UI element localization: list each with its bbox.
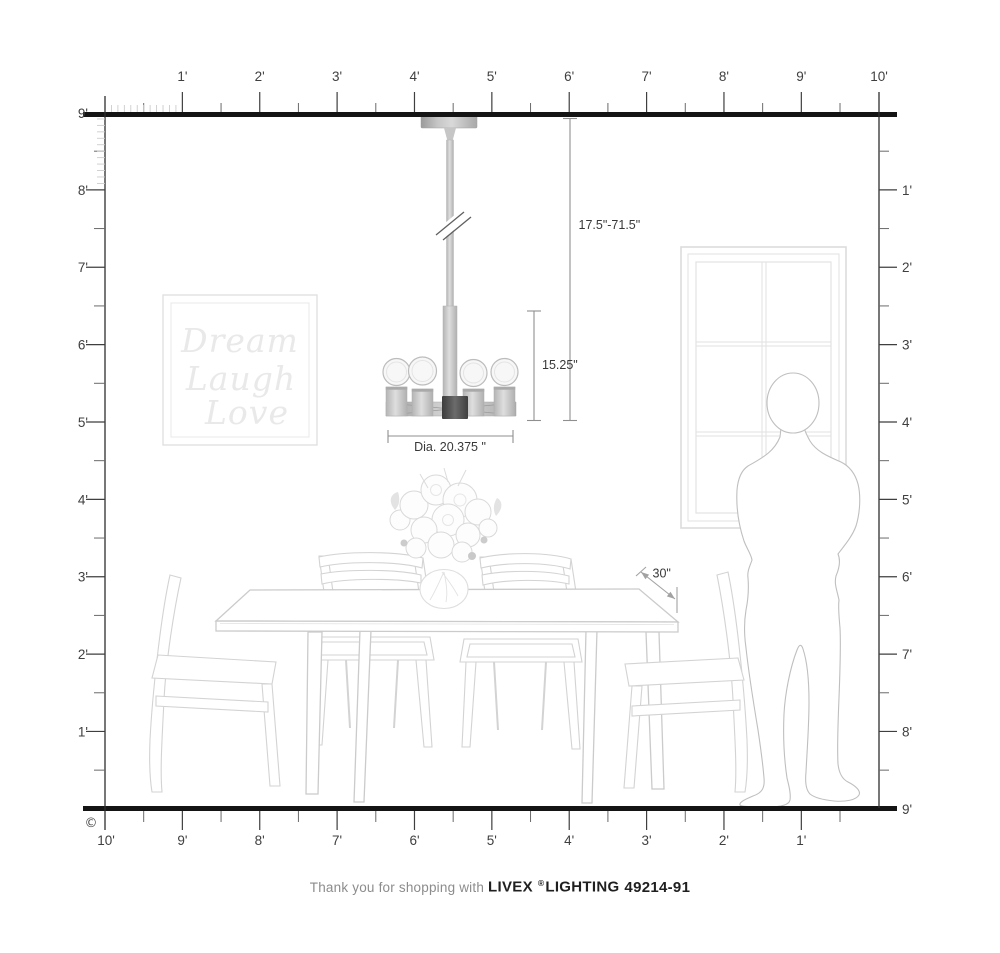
ceiling-line bbox=[83, 112, 897, 117]
right-ruler-label-9ft: 9' bbox=[902, 802, 912, 817]
top-ruler-label-8ft: 8' bbox=[719, 69, 729, 84]
left-ruler-label-9ft: 9' bbox=[78, 106, 88, 121]
wall-art-text-love: Love bbox=[204, 393, 289, 432]
left-ruler-label-8ft: 8' bbox=[78, 183, 88, 198]
fixture-diameter-dimension: Dia. 20.375 " bbox=[388, 430, 513, 454]
right-ruler-labels: 1' 2' 3' 4' 5' 6' 7' 8' 9' bbox=[902, 183, 912, 817]
left-ruler-label-1ft: 1' bbox=[78, 725, 88, 740]
top-ruler-label-9ft: 9' bbox=[796, 69, 806, 84]
table-top-edge bbox=[216, 621, 678, 632]
chandelier-canopy-neck bbox=[444, 128, 456, 141]
chandelier-drawing bbox=[383, 116, 518, 419]
footer-model-number: 49214-91 bbox=[624, 879, 690, 896]
copyright-symbol: © bbox=[85, 816, 98, 831]
top-ruler-label-3ft: 3' bbox=[332, 69, 342, 84]
right-ruler-label-8ft: 8' bbox=[902, 725, 912, 740]
top-ruler-label-10ft: 10' bbox=[870, 69, 888, 84]
bottom-ruler-label-6ft: 6' bbox=[409, 833, 419, 848]
hanging-height-dimension: 17.5"-71.5" bbox=[563, 119, 640, 421]
bottom-ruler-label-10ft: 10' bbox=[97, 833, 115, 848]
chandelier-center-hub bbox=[442, 396, 468, 419]
right-ruler-label-5ft: 5' bbox=[902, 493, 912, 508]
fixture-height-label: 15.25" bbox=[542, 358, 578, 372]
hanging-height-label: 17.5"-71.5" bbox=[579, 218, 641, 232]
bottom-ruler-label-2ft: 2' bbox=[719, 833, 729, 848]
table-depth-label: 30" bbox=[653, 567, 671, 581]
top-ruler-label-5ft: 5' bbox=[487, 69, 497, 84]
top-ruler-label-1ft: 1' bbox=[177, 69, 187, 84]
bottom-ruler-label-7ft: 7' bbox=[332, 833, 342, 848]
top-ruler-ticks bbox=[111, 92, 840, 112]
chair-back-right-drawing bbox=[460, 554, 582, 749]
person-silhouette bbox=[737, 373, 860, 807]
right-ruler-ticks bbox=[879, 151, 897, 770]
bottom-ruler-label-8ft: 8' bbox=[255, 833, 265, 848]
wall-art-drawing: Dream Laugh Love bbox=[163, 295, 317, 445]
dining-table-drawing bbox=[216, 589, 678, 803]
bottom-ruler-label-4ft: 4' bbox=[564, 833, 574, 848]
chandelier-downrod-lower bbox=[443, 306, 457, 402]
top-ruler-label-7ft: 7' bbox=[642, 69, 652, 84]
top-ruler-labels: 1' 2' 3' 4' 5' 6' 7' 8' 9' 10' bbox=[177, 69, 887, 84]
right-ruler-label-3ft: 3' bbox=[902, 338, 912, 353]
chandelier-canopy bbox=[421, 116, 477, 128]
top-ruler-label-2ft: 2' bbox=[255, 69, 265, 84]
footer-thanks-text: Thank you for shopping with bbox=[310, 880, 484, 895]
dimension-diagram-canvas: Dream Laugh Love bbox=[0, 0, 1000, 953]
floor-line bbox=[83, 806, 897, 811]
bottom-ruler-label-3ft: 3' bbox=[642, 833, 652, 848]
chair-back-left-drawing bbox=[312, 553, 434, 747]
left-ruler-label-6ft: 6' bbox=[78, 338, 88, 353]
registered-trademark-icon: ® bbox=[538, 878, 544, 888]
bottom-ruler-label-5ft: 5' bbox=[487, 833, 497, 848]
footer-brand: LIVEX bbox=[488, 879, 533, 896]
right-ruler-label-7ft: 7' bbox=[902, 647, 912, 662]
right-ruler-label-6ft: 6' bbox=[902, 570, 912, 585]
footer-message: Thank you for shopping withLIVEX®LIGHTIN… bbox=[0, 878, 1000, 896]
right-ruler-label-2ft: 2' bbox=[902, 260, 912, 275]
fixture-diameter-label: Dia. 20.375 " bbox=[414, 440, 486, 454]
person-head bbox=[767, 373, 819, 433]
left-ruler-label-5ft: 5' bbox=[78, 415, 88, 430]
left-ruler-ticks bbox=[86, 119, 105, 770]
wall-art-text-dream: Dream bbox=[180, 321, 299, 360]
bottom-ruler-label-9ft: 9' bbox=[177, 833, 187, 848]
right-ruler-label-4ft: 4' bbox=[902, 415, 912, 430]
right-ruler-label-1ft: 1' bbox=[902, 183, 912, 198]
top-ruler-label-6ft: 6' bbox=[564, 69, 574, 84]
top-ruler-label-4ft: 4' bbox=[409, 69, 419, 84]
product-dimension-diagram: Dream Laugh Love bbox=[0, 0, 1000, 953]
bottom-ruler-ticks bbox=[144, 811, 840, 830]
left-ruler-label-3ft: 3' bbox=[78, 570, 88, 585]
bottom-ruler-labels: 10' 9' 8' 7' 6' 5' 4' 3' 2' 1' bbox=[97, 833, 806, 848]
left-ruler-label-7ft: 7' bbox=[78, 260, 88, 275]
footer-brand-suffix: LIGHTING bbox=[545, 879, 619, 896]
left-ruler-label-2ft: 2' bbox=[78, 647, 88, 662]
left-ruler-label-4ft: 4' bbox=[78, 493, 88, 508]
bottom-ruler-label-1ft: 1' bbox=[796, 833, 806, 848]
left-ruler-labels: 9' 8' 7' 6' 5' 4' 3' 2' 1' bbox=[78, 106, 88, 740]
